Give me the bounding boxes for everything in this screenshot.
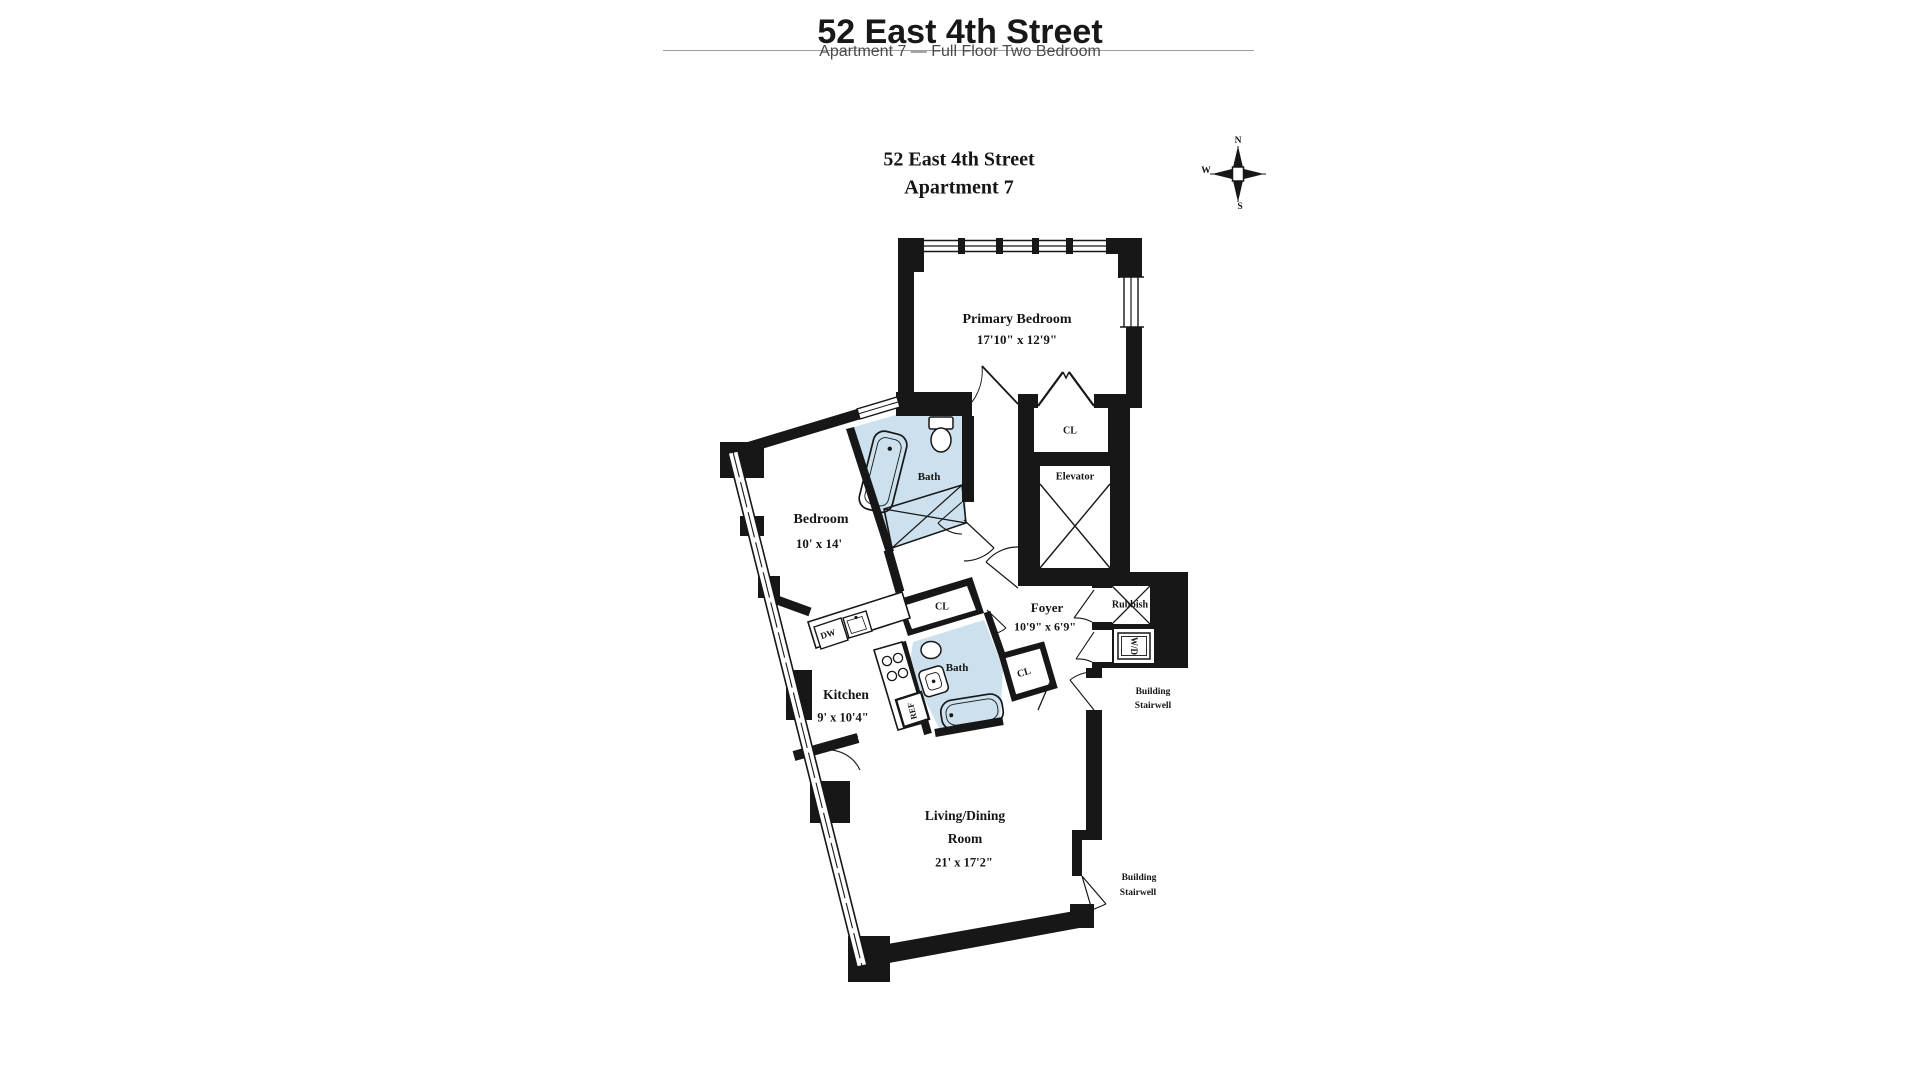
compass-south-label: S	[1237, 202, 1242, 212]
label-washer-dryer: W/D	[1129, 637, 1139, 655]
label-bath-upper: Bath	[918, 471, 941, 483]
compass-rose	[1210, 146, 1266, 202]
label-bath-lower: Bath	[946, 662, 969, 674]
label-living-dining-dims: 21' x 17'2"	[935, 856, 993, 871]
label-stairwell-upper-line1: Building	[1136, 687, 1171, 697]
label-elevator: Elevator	[1056, 472, 1095, 483]
label-stairwell-upper-line2: Stairwell	[1135, 701, 1171, 711]
plan-title-line2: Apartment 7	[904, 177, 1013, 200]
floorplan-page: 52 East 4th Street Apartment 7 — Full Fl…	[0, 0, 1920, 1080]
label-stairwell-lower-line2: Stairwell	[1120, 888, 1156, 898]
label-closet-primary: CL	[1063, 426, 1077, 437]
label-bedroom: Bedroom	[794, 512, 849, 528]
compass-west-label: W	[1201, 166, 1211, 176]
label-kitchen: Kitchen	[823, 687, 869, 703]
label-living-dining-line2: Room	[948, 831, 983, 847]
plan-title-line1: 52 East 4th Street	[883, 149, 1034, 172]
label-closet-hall: CL	[935, 602, 949, 613]
label-bedroom-dims: 10' x 14'	[796, 536, 842, 552]
label-rubbish: Rubbish	[1112, 600, 1148, 611]
label-kitchen-dims: 9' x 10'4"	[817, 711, 868, 726]
label-primary-bedroom: Primary Bedroom	[963, 312, 1072, 328]
compass-north-label: N	[1235, 136, 1242, 146]
label-stairwell-lower-line1: Building	[1122, 873, 1157, 883]
label-foyer: Foyer	[1031, 600, 1063, 616]
label-foyer-dims: 10'9" x 6'9"	[1014, 620, 1076, 635]
label-primary-bedroom-dims: 17'10" x 12'9"	[977, 332, 1057, 348]
label-living-dining-line1: Living/Dining	[925, 808, 1005, 824]
